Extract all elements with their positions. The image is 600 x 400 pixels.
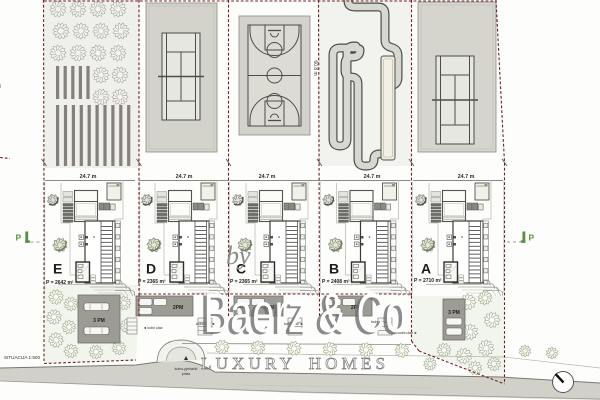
svg-text:P = 2365 m²: P = 2365 m² [138,279,166,285]
svg-text:P = 2642 m²: P = 2642 m² [46,280,74,286]
svg-text:60.8 m: 60.8 m [312,60,318,75]
svg-text:prilaz: prilaz [182,372,191,376]
svg-text:P: P [16,233,22,243]
svg-text:kolno-pješački: kolno-pješački [175,367,198,371]
svg-text:3 PM: 3 PM [93,318,105,324]
svg-text:◄ kolni ulaz: ◄ kolni ulaz [143,326,163,330]
svg-text:24.7 m: 24.7 m [259,174,276,180]
svg-text:P = 2710 m²: P = 2710 m² [414,278,442,284]
svg-text:24.7 m: 24.7 m [458,174,475,180]
svg-text:LUXURY HOMES: LUXURY HOMES [201,354,389,373]
svg-text:24.7 m: 24.7 m [80,174,97,180]
svg-text:B: B [329,261,339,277]
svg-text:SITUACIJA 1:500: SITUACIJA 1:500 [4,355,40,360]
svg-text:E: E [53,261,62,277]
svg-text:D: D [146,261,156,277]
svg-text:P: P [529,233,535,243]
svg-text:3 PM: 3 PM [448,310,460,316]
svg-text:24.7 m: 24.7 m [364,174,381,180]
svg-text:Baerz & Co: Baerz & Co [204,281,408,344]
svg-text:2PM: 2PM [173,305,183,311]
svg-text:24.7 m: 24.7 m [176,174,193,180]
svg-text:by: by [226,241,251,270]
svg-text:A: A [421,261,431,277]
